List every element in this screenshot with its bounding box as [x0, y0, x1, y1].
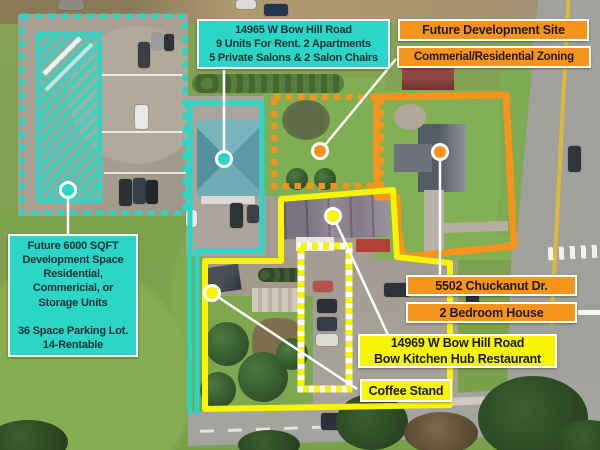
- connector-coffee-stand: [212, 293, 357, 389]
- label-zoning: Commerial/Residential Zoning: [397, 46, 591, 68]
- label-development-space: Future 6000 SQFT Development Space Resid…: [8, 234, 138, 357]
- connector-future-site: [320, 59, 396, 151]
- development-hatch-area: [38, 34, 100, 201]
- salon-marker-dot: [217, 152, 232, 167]
- connector-restaurant: [333, 216, 388, 335]
- label-coffee-stand: Coffee Stand: [360, 379, 452, 402]
- label-restaurant: 14969 W Bow Hill Road Bow Kitchen Hub Re…: [358, 334, 557, 368]
- aerial-property-map: 14965 W Bow Hill Road 9 Units For Rent. …: [0, 0, 600, 450]
- salon-property-outline: [190, 103, 262, 412]
- label-future-development-site: Future Development Site: [398, 19, 589, 41]
- label-salon-property: 14965 W Bow Hill Road 9 Units For Rent. …: [197, 19, 390, 69]
- restaurant-marker-dot: [326, 209, 341, 224]
- parking-lot-marker-dot: [61, 183, 76, 198]
- future-site-marker-dot: [313, 144, 328, 159]
- label-house-address: 5502 Chuckanut Dr.: [406, 275, 577, 296]
- coffee-stand-marker-dot: [205, 286, 220, 301]
- label-house-type: 2 Bedroom House: [406, 302, 577, 323]
- house-marker-dot: [433, 145, 448, 160]
